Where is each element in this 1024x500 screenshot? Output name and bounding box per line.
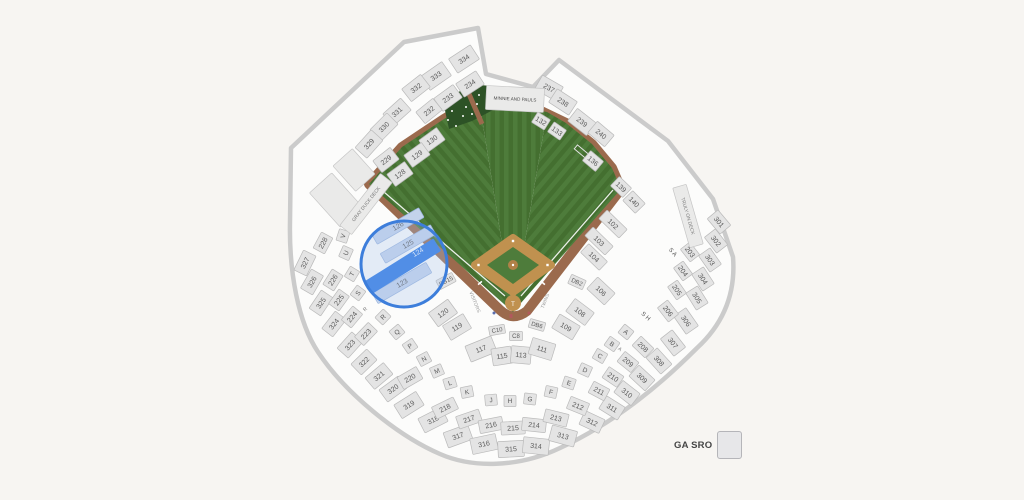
section-113[interactable]: 113 — [510, 346, 531, 365]
svg-text:215: 215 — [507, 425, 519, 433]
section-115[interactable]: 115 — [491, 346, 513, 366]
dugout-marker-visitors — [493, 312, 496, 315]
section-214[interactable]: 214 — [521, 417, 546, 432]
legend-ga-sro-swatch[interactable] — [717, 431, 742, 459]
svg-text:113: 113 — [515, 352, 527, 360]
legend-ga-sro[interactable]: GA SRO — [674, 431, 742, 459]
section-315[interactable]: 315 — [498, 440, 525, 457]
svg-text:C8: C8 — [512, 334, 520, 340]
svg-text:T: T — [511, 302, 515, 308]
section-g[interactable]: G — [523, 393, 536, 405]
svg-text:G: G — [527, 396, 533, 403]
svg-text:214: 214 — [528, 422, 540, 430]
pitchers-rubber — [512, 264, 514, 266]
section-minnie-and-pauls[interactable]: MINNIE AND PAULS — [485, 85, 544, 112]
dugout-marker-twins — [528, 312, 531, 315]
section-c8[interactable]: C8 — [510, 332, 523, 341]
section-t: T — [511, 302, 515, 308]
home-plate-logo-mark — [510, 314, 513, 318]
svg-text:315: 315 — [505, 446, 517, 454]
section-314[interactable]: 314 — [522, 437, 550, 456]
svg-text:J: J — [489, 397, 493, 404]
svg-text:314: 314 — [530, 443, 542, 451]
section-f[interactable]: F — [544, 385, 558, 398]
svg-text:H: H — [508, 398, 513, 405]
legend-ga-sro-label: GA SRO — [674, 440, 712, 451]
section-h[interactable]: H — [504, 396, 516, 407]
section-j[interactable]: J — [485, 394, 498, 406]
stadium-map: 3343333323313303293273263253243233223213… — [0, 0, 1024, 500]
section-k[interactable]: K — [460, 385, 474, 398]
